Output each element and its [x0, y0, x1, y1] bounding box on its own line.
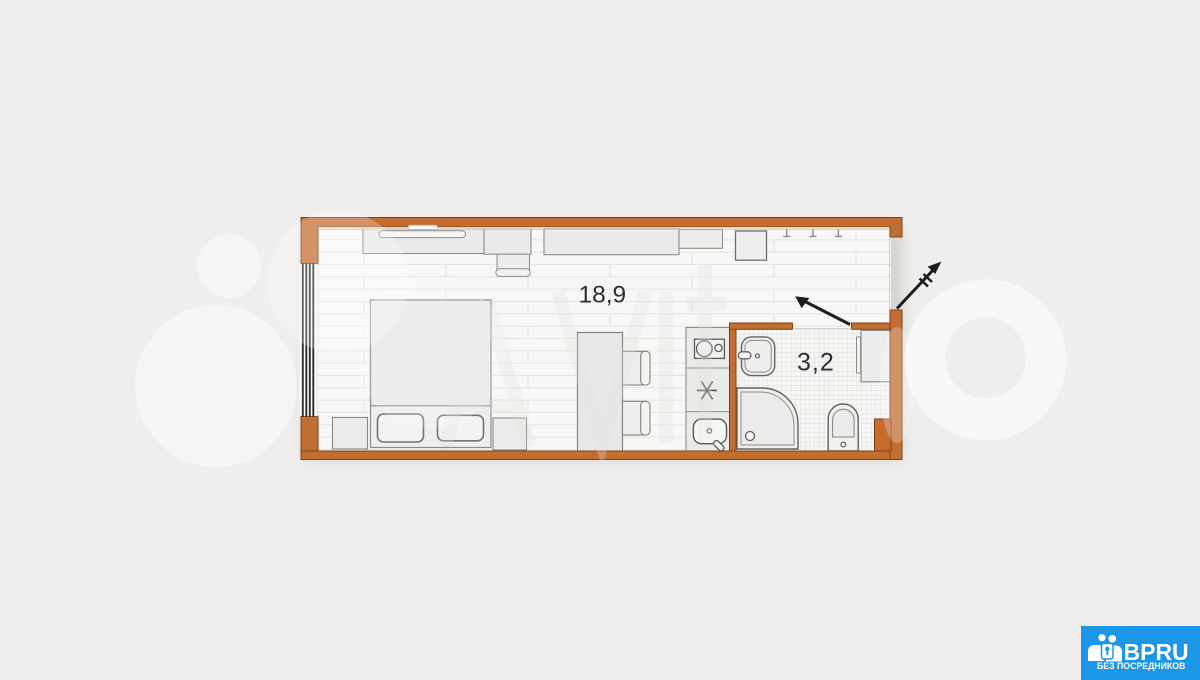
svg-text:18,9: 18,9 — [579, 282, 627, 309]
svg-text:3,2: 3,2 — [797, 349, 835, 377]
